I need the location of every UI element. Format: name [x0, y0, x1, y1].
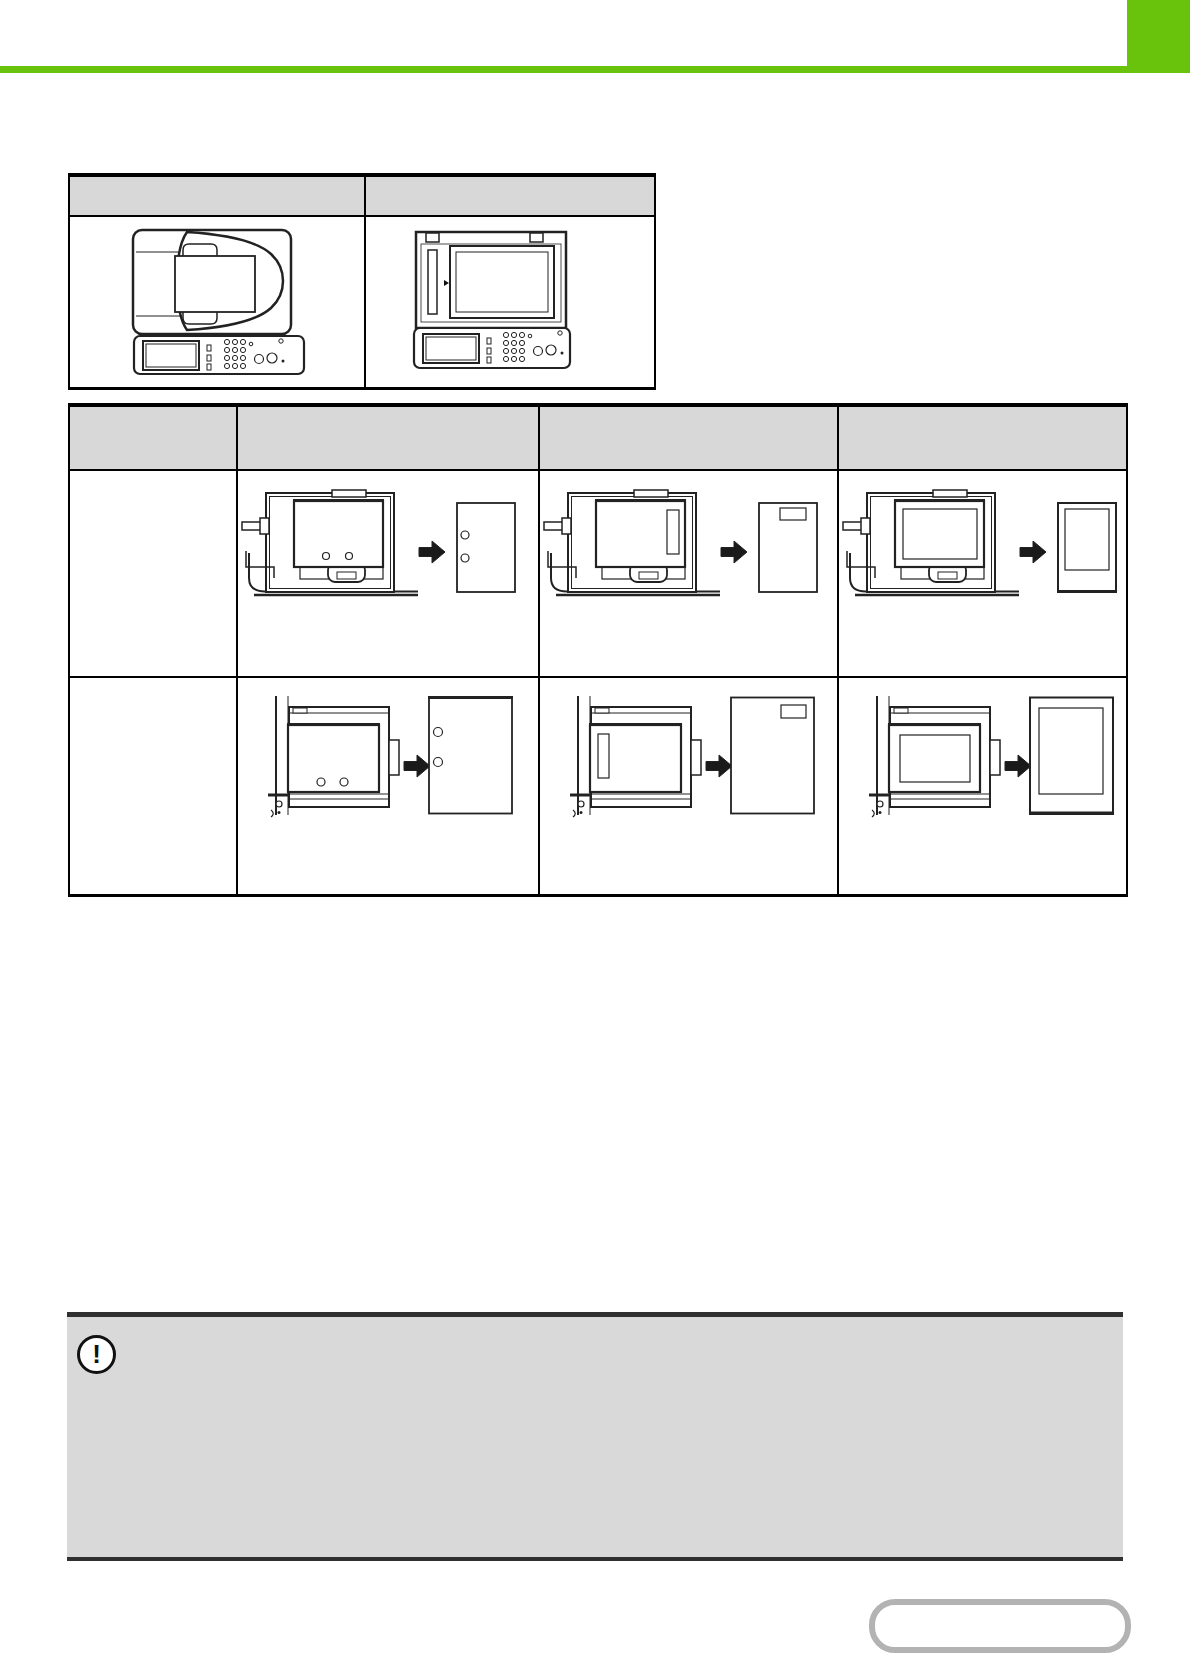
punch-mark — [340, 778, 348, 786]
comparison-header-row — [70, 177, 654, 217]
device-comparison-table — [68, 173, 656, 390]
right-arrow-icon — [721, 541, 747, 563]
right-arrow-icon — [1005, 755, 1031, 777]
output-sheet-frame — [1057, 503, 1117, 592]
scan-strip — [428, 250, 437, 314]
output-sheet-stamp — [759, 503, 817, 592]
document-glass-illustration — [414, 224, 572, 372]
output-sheet-frame — [1029, 698, 1114, 814]
feeder-punch-cell-illustration — [238, 471, 538, 676]
green-accent-bar — [0, 66, 1190, 73]
feeder-frame-cell-illustration — [839, 471, 1139, 676]
punch-mark — [346, 553, 353, 560]
page: ! — [0, 0, 1190, 1656]
stamp-area-mark — [598, 734, 609, 778]
right-arrow-icon — [706, 755, 732, 777]
alert-icon: ! — [77, 1335, 116, 1374]
glass-area — [450, 246, 554, 318]
original-on-feeder — [175, 256, 255, 312]
stamp-area-mark — [667, 510, 679, 554]
right-arrow-icon — [1020, 541, 1046, 563]
punch-mark — [323, 553, 330, 560]
punch-mark — [317, 778, 325, 786]
contents-button[interactable] — [869, 1599, 1131, 1653]
right-arrow-icon — [404, 755, 430, 777]
chapter-corner-block — [1127, 0, 1190, 73]
output-sheet-stamp — [731, 698, 814, 814]
output-sheet-punch — [457, 503, 515, 592]
control-panel — [414, 328, 570, 368]
output-sheet-punch — [428, 698, 513, 814]
column-divider — [364, 177, 366, 387]
positions-table — [68, 403, 1128, 897]
document-feeder-illustration — [131, 228, 306, 376]
glass-stamp-cell-illustration — [540, 678, 840, 896]
right-arrow-icon — [419, 541, 445, 563]
note-box: ! — [67, 1312, 1123, 1561]
alert-glyph: ! — [92, 1341, 101, 1367]
glass-frame-cell-illustration — [839, 678, 1139, 896]
glass-punch-cell-illustration — [238, 678, 538, 896]
feeder-stamp-cell-illustration — [540, 471, 840, 676]
positions-header-row — [70, 407, 1126, 471]
control-panel — [134, 336, 304, 374]
